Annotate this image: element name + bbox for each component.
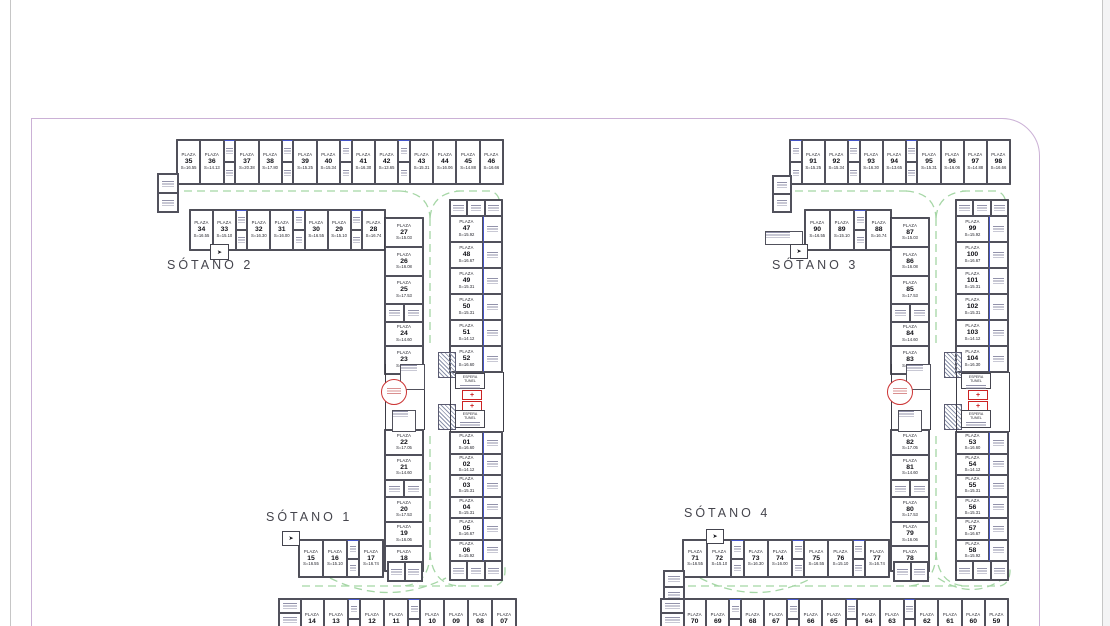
plaza-cell: PLAZA81S=14.60 <box>891 455 929 480</box>
trastero-cell <box>348 619 360 626</box>
plaza-number: 62 <box>923 618 931 625</box>
trastero-cell <box>891 304 910 322</box>
plaza-with-storage-row: PLAZA05S=16.67 <box>450 518 502 540</box>
trastero-cell <box>404 480 423 497</box>
trastero-stack <box>224 140 236 184</box>
plaza-cell: PLAZA45S=14.88 <box>456 140 479 184</box>
plaza-cell: PLAZA43S=15.31 <box>410 140 433 184</box>
trastero-cell <box>989 454 1008 476</box>
trastero-cell <box>483 268 502 294</box>
floor-label-sotano-1: SÓTANO 1 <box>266 510 352 524</box>
plaza-cell: PLAZA100S=16.67 <box>956 242 989 268</box>
plaza-area: S=16.06 <box>396 538 412 543</box>
entrance-arrow-glyph: ➤ <box>288 535 293 542</box>
trastero-cell <box>483 475 502 497</box>
trastero-pair <box>387 561 423 582</box>
trastero-cell <box>989 475 1008 497</box>
plaza-cell: PLAZA55S=15.31 <box>956 475 989 497</box>
plaza-cell: PLAZA04S=15.31 <box>450 497 483 519</box>
plaza-cell: PLAZA91S=15.25 <box>802 140 825 184</box>
espera-line: TUNEL <box>456 379 484 383</box>
stall-group-s1-bot: PLAZA14PLAZA13PLAZA12PLAZA11PLAZA10PLAZA… <box>300 599 516 626</box>
plaza-cell: PLAZA27S=15.03 <box>385 218 423 247</box>
trastero-cell <box>405 562 422 581</box>
plaza-cell: PLAZA02S=14.12 <box>450 454 483 476</box>
plaza-cell: PLAZA82S=17.05 <box>891 430 929 455</box>
trastero-stack <box>340 140 352 184</box>
trastero-stack <box>347 540 359 577</box>
plaza-area: S=15.31 <box>965 511 981 516</box>
plaza-area: S=15.31 <box>414 166 430 171</box>
trastero-cell <box>351 230 363 250</box>
plaza-cell: PLAZA65 <box>822 599 845 626</box>
trastero-row <box>956 561 1008 580</box>
plaza-cell: PLAZA44S=16.06 <box>433 140 456 184</box>
trastero-cell <box>853 559 865 578</box>
plaza-cell: PLAZA26S=16.08 <box>385 247 423 276</box>
trastero-stack <box>729 599 741 626</box>
plaza-cell: PLAZA103S=14.12 <box>956 320 989 346</box>
plaza-area: S=15.31 <box>459 311 475 316</box>
trastero-cell <box>891 480 910 497</box>
plaza-cell: PLAZA56S=15.31 <box>956 497 989 519</box>
plaza-cell: PLAZA74S=16.00 <box>768 540 792 577</box>
plaza-number: 65 <box>830 618 838 625</box>
plaza-cell: PLAZA50S=15.31 <box>450 294 483 320</box>
plaza-cell: PLAZA46S=16.66 <box>480 140 503 184</box>
plaza-number: 67 <box>772 618 780 625</box>
trastero-cell <box>483 540 502 562</box>
trastero-cell <box>853 540 865 559</box>
plaza-cell: PLAZA76S=15.10 <box>828 540 852 577</box>
plaza-with-storage-row: PLAZA56S=15.31 <box>956 497 1008 519</box>
plaza-area: S=16.00 <box>772 562 788 567</box>
page-edge-line <box>10 0 11 626</box>
trastero-cell <box>787 599 799 619</box>
plaza-cell: PLAZA10 <box>420 599 444 626</box>
plaza-cell: PLAZA15S=16.55 <box>299 540 323 577</box>
plaza-cell: PLAZA01S=16.60 <box>450 432 483 454</box>
trastero-cell <box>854 210 866 230</box>
plaza-cell: PLAZA30S=16.55 <box>305 210 328 250</box>
plaza-with-storage-row: PLAZA102S=15.31 <box>956 294 1008 320</box>
stall-group-s4-rcol: PLAZA53S=16.60PLAZA54S=14.12PLAZA55S=15.… <box>956 432 1008 580</box>
plaza-area: S=14.12 <box>459 337 475 342</box>
trastero-stack <box>846 599 858 626</box>
plaza-area: S=16.30 <box>863 166 879 171</box>
plaza-number: 70 <box>691 618 699 625</box>
plaza-cell: PLAZA80S=17.53 <box>891 497 929 522</box>
stall-group-s4-row: PLAZA71S=16.55PLAZA72S=15.10PLAZA73S=16.… <box>683 540 889 577</box>
stall-group-s1-rcol: PLAZA01S=16.60PLAZA02S=14.12PLAZA03S=15.… <box>450 432 502 580</box>
plaza-with-storage-row: PLAZA101S=15.31 <box>956 268 1008 294</box>
trastero-pair <box>893 561 929 582</box>
plaza-area: S=16.60 <box>965 446 981 451</box>
plaza-area: S=16.60 <box>459 363 475 368</box>
plaza-cell: PLAZA69 <box>706 599 729 626</box>
plaza-area: S=17.53 <box>902 513 918 518</box>
trastero-cell <box>279 599 301 613</box>
trastero-stack <box>351 210 363 250</box>
trastero-cell <box>661 599 684 613</box>
utility-box <box>898 410 922 432</box>
plaza-area: S=15.31 <box>965 489 981 494</box>
trastero-cell <box>910 480 929 497</box>
stall-group-s3-top: PLAZA91S=15.25PLAZA92S=15.34PLAZA93S=16.… <box>790 140 1010 184</box>
plaza-number: 13 <box>332 618 340 625</box>
cross-glyph: + <box>470 403 474 410</box>
trastero-cell <box>224 162 236 184</box>
trastero-cell <box>450 561 467 580</box>
trastero-cell <box>388 562 405 581</box>
cross-glyph: + <box>976 403 980 410</box>
stall-group-s2-col: PLAZA27S=15.03PLAZA26S=16.08PLAZA25S=17.… <box>385 218 423 374</box>
espera-line: TUNEL <box>962 416 990 420</box>
stair-elevator-box <box>278 598 302 626</box>
entrance-arrow-glyph: ➤ <box>712 533 717 540</box>
plaza-area: S=16.30 <box>355 166 371 171</box>
plaza-area: S=15.34 <box>321 166 337 171</box>
trastero-cell <box>787 619 799 626</box>
trastero-cell <box>848 140 860 162</box>
plaza-with-storage-row: PLAZA104S=16.30 <box>956 346 1008 372</box>
trastero-cell <box>848 162 860 184</box>
plaza-area: S=15.31 <box>459 489 475 494</box>
trastero-cell <box>408 599 420 619</box>
plaza-area: S=15.10 <box>833 562 849 567</box>
floor-plan-canvas: SÓTANO 2 SÓTANO 1 SÓTANO 3 SÓTANO 4 PLAZ… <box>0 0 1110 626</box>
trastero-cell <box>467 561 484 580</box>
plaza-area: S=16.55 <box>687 562 703 567</box>
plaza-area: S=14.12 <box>965 337 981 342</box>
plaza-with-storage-row: PLAZA04S=15.31 <box>450 497 502 519</box>
plaza-number: 14 <box>308 618 316 625</box>
plaza-cell: PLAZA89S=15.10 <box>830 210 855 250</box>
cross-glyph: + <box>470 392 474 399</box>
plaza-cell: PLAZA77S=16.74 <box>865 540 889 577</box>
trastero-cell <box>731 559 743 578</box>
plaza-cell: PLAZA90S=16.55 <box>805 210 830 250</box>
plaza-area: S=15.92 <box>459 233 475 238</box>
plaza-cell: PLAZA71S=16.55 <box>683 540 707 577</box>
plaza-area: S=17.80 <box>262 166 278 171</box>
trastero-cell <box>911 562 928 581</box>
plaza-with-storage-row: PLAZA02S=14.12 <box>450 454 502 476</box>
plaza-cell: PLAZA19S=16.06 <box>385 522 423 546</box>
trastero-cell <box>910 304 929 322</box>
trastero-cell <box>956 561 973 580</box>
plaza-cell: PLAZA29S=15.10 <box>328 210 351 250</box>
trastero-pair <box>385 304 423 322</box>
plaza-cell: PLAZA07 <box>492 599 516 626</box>
plaza-number: 59 <box>993 618 1001 625</box>
plaza-cell: PLAZA08 <box>468 599 492 626</box>
floor-label-sotano-3: SÓTANO 3 <box>772 258 858 272</box>
floor-label-sotano-4: SÓTANO 4 <box>684 506 770 520</box>
trastero-cell <box>846 599 858 619</box>
page-edge-line <box>1102 0 1103 626</box>
trastero-cell <box>483 294 502 320</box>
tunnel-cross-icon: + <box>968 390 988 400</box>
trastero-pair <box>385 480 423 497</box>
plaza-area: S=16.55 <box>308 234 324 239</box>
trastero-cell <box>385 304 404 322</box>
trastero-cell <box>792 540 804 559</box>
plaza-area: S=15.31 <box>459 511 475 516</box>
trastero-cell <box>282 162 294 184</box>
plaza-cell: PLAZA54S=14.12 <box>956 454 989 476</box>
plaza-cell: PLAZA38S=17.80 <box>259 140 282 184</box>
plaza-with-storage-row: PLAZA54S=14.12 <box>956 454 1008 476</box>
plaza-area: S=15.34 <box>828 166 844 171</box>
plaza-area: S=14.12 <box>965 468 981 473</box>
plaza-cell: PLAZA85S=17.53 <box>891 276 929 304</box>
entrance-arrow-icon: ➤ <box>790 244 808 259</box>
plaza-area: S=17.05 <box>902 446 918 451</box>
stall-group-s2-rcol: PLAZA47S=15.92PLAZA48S=16.67PLAZA49S=15.… <box>450 200 502 372</box>
trastero-cell <box>236 230 248 250</box>
trastero-cell <box>956 200 973 216</box>
trastero-stack <box>853 540 865 577</box>
plaza-with-storage-row: PLAZA53S=16.60 <box>956 432 1008 454</box>
plaza-area: S=15.25 <box>805 166 821 171</box>
plaza-cell: PLAZA63 <box>880 599 903 626</box>
plaza-cell: PLAZA72S=15.10 <box>707 540 731 577</box>
plaza-area: S=17.53 <box>396 294 412 299</box>
trastero-cell <box>661 613 684 626</box>
plaza-cell: PLAZA64 <box>857 599 880 626</box>
tunnel-wait-box: ESPERATUNEL <box>961 373 991 389</box>
tunnel-wait-box: ESPERATUNEL <box>961 410 991 428</box>
trastero-cell <box>483 518 502 540</box>
plaza-area: S=16.67 <box>459 532 475 537</box>
plaza-area: S=16.74 <box>869 562 885 567</box>
plaza-cell: PLAZA48S=16.67 <box>450 242 483 268</box>
plaza-with-storage-row: PLAZA55S=15.31 <box>956 475 1008 497</box>
floor-label-sotano-2: SÓTANO 2 <box>167 258 253 272</box>
stair-elevator-box <box>157 173 179 213</box>
trastero-cell <box>906 162 918 184</box>
plaza-with-storage-row: PLAZA58S=15.92 <box>956 540 1008 562</box>
trastero-cell <box>906 140 918 162</box>
plaza-cell: PLAZA62 <box>915 599 938 626</box>
trastero-cell <box>729 599 741 619</box>
plaza-with-storage-row: PLAZA103S=14.12 <box>956 320 1008 346</box>
trastero-cell <box>989 216 1008 242</box>
plaza-area: S=16.30 <box>748 562 764 567</box>
plaza-cell: PLAZA88S=16.74 <box>866 210 891 250</box>
trastero-cell <box>904 599 916 619</box>
trastero-cell <box>483 497 502 519</box>
entrance-arrow-icon: ➤ <box>282 531 300 546</box>
plaza-cell: PLAZA41S=16.30 <box>352 140 375 184</box>
trastero-cell <box>792 559 804 578</box>
plaza-area: S=16.67 <box>965 259 981 264</box>
plaza-cell: PLAZA94S=13.65 <box>883 140 906 184</box>
plaza-area: S=13.65 <box>379 166 395 171</box>
plaza-number: 07 <box>500 618 508 625</box>
plaza-cell: PLAZA28S=16.74 <box>362 210 385 250</box>
stall-group-s3-row2: PLAZA90S=16.55PLAZA89S=15.10PLAZA88S=16.… <box>805 210 891 250</box>
trastero-stack <box>792 540 804 577</box>
trastero-row <box>450 561 502 580</box>
plaza-area: S=17.53 <box>902 294 918 299</box>
trastero-cell <box>385 480 404 497</box>
plaza-cell: PLAZA60 <box>962 599 985 626</box>
plaza-number: 11 <box>392 618 399 625</box>
plaza-area: S=16.55 <box>808 562 824 567</box>
trastero-cell <box>340 162 352 184</box>
plaza-area: S=16.06 <box>902 538 918 543</box>
trastero-cell <box>347 559 359 578</box>
trastero-cell <box>224 140 236 162</box>
trastero-stack <box>236 210 248 250</box>
plaza-cell: PLAZA37S=20.38 <box>235 140 258 184</box>
trastero-cell <box>731 540 743 559</box>
plaza-cell: PLAZA49S=15.31 <box>450 268 483 294</box>
plaza-number: 08 <box>476 618 484 625</box>
trastero-cell <box>398 162 410 184</box>
plaza-area: S=16.55 <box>303 562 319 567</box>
trastero-cell <box>904 619 916 626</box>
plaza-cell: PLAZA47S=15.92 <box>450 216 483 242</box>
trastero-cell <box>483 320 502 346</box>
plaza-cell: PLAZA14 <box>300 599 324 626</box>
stall-group-s1-row: PLAZA15S=16.55PLAZA16S=15.10PLAZA17S=16.… <box>299 540 383 577</box>
trastero-cell <box>973 200 990 216</box>
plaza-area: S=15.25 <box>297 166 313 171</box>
stair-elevator-box <box>772 175 792 213</box>
trastero-cell <box>158 174 178 193</box>
plaza-area: S=16.08 <box>396 265 412 270</box>
plaza-cell: PLAZA22S=17.05 <box>385 430 423 455</box>
trastero-cell <box>483 432 502 454</box>
plaza-with-storage-row: PLAZA48S=16.67 <box>450 242 502 268</box>
plaza-cell: PLAZA79S=16.06 <box>891 522 929 546</box>
plaza-cell: PLAZA24S=14.60 <box>385 322 423 346</box>
plaza-cell: PLAZA57S=16.67 <box>956 518 989 540</box>
plaza-with-storage-row: PLAZA51S=14.12 <box>450 320 502 346</box>
plaza-cell: PLAZA53S=16.60 <box>956 432 989 454</box>
plaza-area: S=16.55 <box>194 234 210 239</box>
plaza-with-storage-row: PLAZA06S=15.92 <box>450 540 502 562</box>
plaza-cell: PLAZA03S=15.31 <box>450 475 483 497</box>
plaza-area: S=15.31 <box>459 285 475 290</box>
plaza-number: 63 <box>888 618 896 625</box>
plaza-area: S=16.30 <box>251 234 267 239</box>
stall-group-s4-col: PLAZA82S=17.05PLAZA81S=14.60PLAZA80S=17.… <box>891 430 929 571</box>
plaza-area: S=16.55 <box>181 166 197 171</box>
plaza-cell: PLAZA36S=14.13 <box>200 140 223 184</box>
stall-group-s3-col: PLAZA87S=15.03PLAZA86S=16.08PLAZA85S=17.… <box>891 218 929 374</box>
trastero-cell <box>348 599 360 619</box>
espera-line: TUNEL <box>456 416 484 420</box>
plaza-area: S=17.53 <box>396 513 412 518</box>
trastero-cell <box>450 200 467 216</box>
trastero-cell <box>485 200 502 216</box>
trastero-row <box>450 200 502 216</box>
trastero-cell <box>846 619 858 626</box>
plaza-cell: PLAZA58S=15.92 <box>956 540 989 562</box>
trastero-stack <box>787 599 799 626</box>
trastero-cell <box>989 320 1008 346</box>
trastero-cell <box>989 432 1008 454</box>
trastero-cell <box>989 497 1008 519</box>
plaza-area: S=15.31 <box>921 166 937 171</box>
trastero-cell <box>989 346 1008 372</box>
utility-box <box>765 231 803 245</box>
plaza-cell: PLAZA70 <box>683 599 706 626</box>
plaza-area: S=16.30 <box>965 363 981 368</box>
plaza-cell: PLAZA09 <box>444 599 468 626</box>
page-right-margin <box>1103 0 1110 626</box>
trastero-cell <box>408 619 420 626</box>
plaza-area: S=14.12 <box>459 468 475 473</box>
plaza-cell: PLAZA84S=14.60 <box>891 322 929 346</box>
plaza-area: S=16.66 <box>991 166 1007 171</box>
trastero-cell <box>340 140 352 162</box>
trastero-stack <box>904 599 916 626</box>
plaza-number: 10 <box>428 618 436 625</box>
trastero-cell <box>398 140 410 162</box>
plaza-cell: PLAZA51S=14.12 <box>450 320 483 346</box>
trastero-cell <box>293 230 305 250</box>
trastero-cell <box>989 294 1008 320</box>
entrance-arrow-icon: ➤ <box>210 244 229 260</box>
plaza-cell: PLAZA99S=15.92 <box>956 216 989 242</box>
plaza-cell: PLAZA40S=15.34 <box>317 140 340 184</box>
trastero-cell <box>483 242 502 268</box>
stall-group-s3-rcol: PLAZA99S=15.92PLAZA100S=16.67PLAZA101S=1… <box>956 200 1008 372</box>
trastero-cell <box>773 176 791 194</box>
trastero-cell <box>404 304 423 322</box>
plaza-number: 12 <box>368 618 376 625</box>
plaza-number: 60 <box>969 618 977 625</box>
plaza-area: S=16.67 <box>459 259 475 264</box>
plaza-cell: PLAZA68 <box>741 599 764 626</box>
plaza-area: S=15.31 <box>965 285 981 290</box>
plaza-area: S=16.06 <box>437 166 453 171</box>
trastero-cell <box>236 210 248 230</box>
trastero-cell <box>158 193 178 212</box>
plaza-number: 61 <box>946 618 954 625</box>
plaza-area: S=14.60 <box>902 471 918 476</box>
plaza-area: S=16.60 <box>459 446 475 451</box>
plaza-with-storage-row: PLAZA49S=15.31 <box>450 268 502 294</box>
plaza-area: S=15.92 <box>459 554 475 559</box>
plaza-cell: PLAZA35S=16.55 <box>177 140 200 184</box>
trastero-pair <box>891 304 929 322</box>
plaza-cell: PLAZA95S=15.31 <box>917 140 940 184</box>
trastero-cell <box>854 230 866 250</box>
trastero-stack <box>731 540 743 577</box>
plaza-area: S=14.60 <box>396 338 412 343</box>
trastero-stack <box>906 140 918 184</box>
trastero-cell <box>483 454 502 476</box>
trastero-stack <box>282 140 294 184</box>
trastero-stack <box>348 599 360 626</box>
plaza-cell: PLAZA97S=14.88 <box>964 140 987 184</box>
plaza-cell: PLAZA06S=15.92 <box>450 540 483 562</box>
trastero-stack <box>293 210 305 250</box>
plaza-number: 64 <box>865 618 873 625</box>
stall-group-s1-col: PLAZA22S=17.05PLAZA21S=14.60PLAZA20S=17.… <box>385 430 423 571</box>
plaza-area: S=15.10 <box>327 562 343 567</box>
stall-group-s4-bot: PLAZA70PLAZA69PLAZA68PLAZA67PLAZA66PLAZA… <box>683 599 1008 626</box>
plaza-area: S=17.05 <box>396 446 412 451</box>
plaza-number: 09 <box>452 618 460 625</box>
plaza-cell: PLAZA92S=15.34 <box>825 140 848 184</box>
